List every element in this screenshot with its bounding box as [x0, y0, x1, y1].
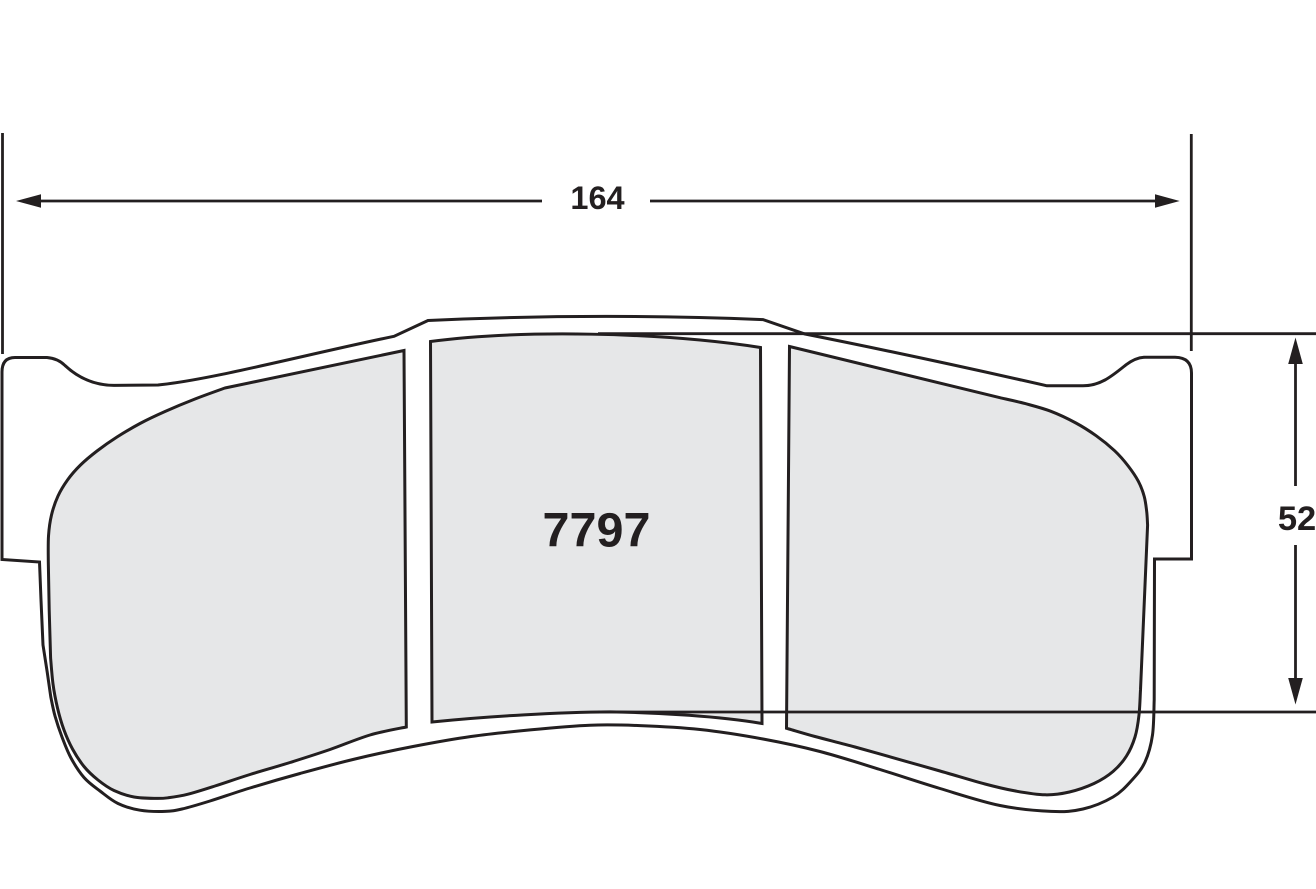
svg-text:164: 164: [570, 180, 624, 216]
svg-text:52: 52: [1278, 500, 1316, 538]
svg-text:7797: 7797: [543, 503, 651, 557]
